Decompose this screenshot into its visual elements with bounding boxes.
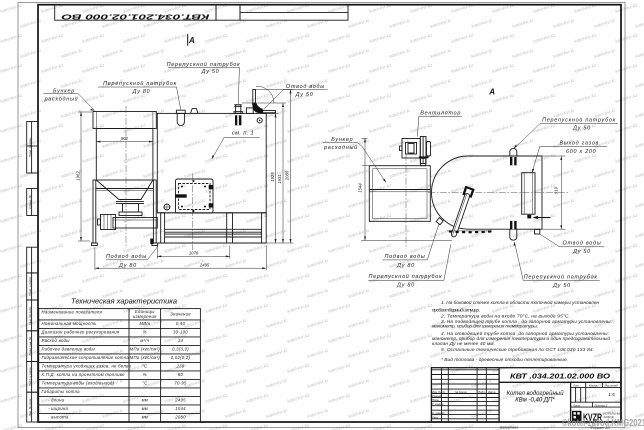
svg-text:Гидравлическое сопротивление к: Гидравлическое сопротивление котла <box>42 355 130 360</box>
svg-text:Габариты котла: Габариты котла <box>42 389 81 394</box>
svg-text:Техническая характеристика: Техническая характеристика <box>71 299 177 306</box>
svg-text:Т. контр.: Т. контр. <box>432 402 444 406</box>
svg-text:Отвод воды: Отвод воды <box>286 84 325 90</box>
svg-text:©kotel-zavod.KMG2021: ©kotel-zavod.KMG2021 <box>562 417 644 429</box>
svg-text:°С: °С <box>142 381 148 386</box>
svg-text:Диапазон рабочего регулировани: Диапазон рабочего регулирования <box>41 330 120 335</box>
svg-text:КВТ .034.201.02.000 ВО: КВТ .034.201.02.000 ВО <box>510 372 610 381</box>
svg-text:Перепускной патрубок: Перепускной патрубок <box>524 273 598 280</box>
svg-text:Дата: Дата <box>487 390 496 394</box>
svg-text:0,02(0,2): 0,02(0,2) <box>171 355 191 360</box>
svg-text:Копировал: Копировал <box>500 425 518 429</box>
svg-text:манометр, прибор для измерения: манометр, прибор для измерения температу… <box>432 324 538 330</box>
svg-text:Ду 50: Ду 50 <box>552 283 571 289</box>
svg-text:%: % <box>143 330 147 335</box>
svg-text:5. Остальные технические треб: 5. Остальные технические требования по О… <box>441 347 594 353</box>
svg-text:4. На отводящей трубе котла ,: 4. На отводящей трубе котла ,до запорной… <box>441 330 610 337</box>
svg-text:Расход воды: Расход воды <box>42 338 71 343</box>
svg-text:Выход газов: Выход газов <box>559 141 599 147</box>
svg-text:1078: 1078 <box>189 251 199 256</box>
svg-text:А: А <box>188 36 195 45</box>
svg-text:измерения: измерения <box>133 314 157 319</box>
svg-text:2080: 2080 <box>285 170 290 181</box>
svg-text:%: % <box>143 372 147 377</box>
svg-text:230: 230 <box>176 364 185 369</box>
svg-text:902: 902 <box>121 136 129 141</box>
svg-text:мм: мм <box>142 415 148 420</box>
svg-text:мм: мм <box>142 406 148 411</box>
svg-text:Подвод воды: Подвод воды <box>106 254 147 260</box>
svg-text:Ду 80: Ду 80 <box>396 263 415 269</box>
svg-text:Лит.: Лит. <box>572 383 580 387</box>
svg-text:Лист: Лист <box>572 403 581 407</box>
svg-text:1962: 1962 <box>76 171 81 181</box>
svg-text:Подп. и дата: Подп. и дата <box>28 367 32 386</box>
svg-text:Перепускной патрубок: Перепускной патрубок <box>368 273 442 280</box>
svg-text:МВт: МВт <box>139 321 150 326</box>
svg-text:Бункер: Бункер <box>331 137 353 143</box>
svg-text:- высота: - высота <box>48 415 69 420</box>
svg-text:Рабочее давление воды: Рабочее давление воды <box>42 347 96 352</box>
svg-text:1. На боковой стенке котла в: 1. На боковой стенке котла в области топ… <box>441 299 599 306</box>
svg-text:2495: 2495 <box>199 262 210 267</box>
svg-text:клапан Ду не менее 40 мм.: клапан Ду не менее 40 мм. <box>432 341 495 347</box>
svg-text:расходный: расходный <box>44 95 79 102</box>
svg-text:Ду 50: Ду 50 <box>201 69 220 75</box>
svg-text:№ докум.: № докум. <box>455 390 468 394</box>
svg-text:Перв. примен.: Перв. примен. <box>28 137 32 157</box>
svg-text:1544: 1544 <box>175 406 186 411</box>
svg-text:Наименование показателя: Наименование показателя <box>42 310 103 315</box>
svg-text:КВм -0,40 ДП*: КВм -0,40 ДП* <box>515 398 555 404</box>
svg-text:Номинальная мощность: Номинальная мощность <box>42 321 98 326</box>
svg-text:Котел водогрейный: Котел водогрейный <box>506 390 564 397</box>
svg-text:* Вид топлива - древесные отх: * Вид топлива - древесные отходы пеллети… <box>441 357 568 363</box>
svg-text:Подвод воды: Подвод воды <box>385 254 426 260</box>
svg-text:К.П.Д. котла на проектном топл: К.П.Д. котла на проектном топливе <box>42 372 126 377</box>
svg-text:Вентилятор: Вентилятор <box>420 111 461 117</box>
svg-text:1544: 1544 <box>357 183 362 193</box>
svg-text:- ширина: - ширина <box>48 406 68 411</box>
svg-text:Ду 80: Ду 80 <box>396 282 415 288</box>
svg-text:Ду 50: Ду 50 <box>572 249 591 255</box>
svg-text:м³/ч: м³/ч <box>140 338 149 343</box>
svg-text:Перепускной патрубок: Перепускной патрубок <box>103 80 177 87</box>
svg-text:Масштаб: Масштаб <box>605 383 618 387</box>
svg-text:0,40: 0,40 <box>176 321 186 326</box>
svg-text:Перепускной патрубок: Перепускной патрубок <box>542 117 616 124</box>
svg-text:пробоотборный штуцер.: пробоотборный штуцер. <box>432 306 480 313</box>
svg-text:А: А <box>488 88 495 97</box>
svg-text:МПа (кгс/см²): МПа (кгс/см²) <box>130 347 161 352</box>
svg-text:мм: мм <box>142 398 148 403</box>
svg-text:Инв. № подл.: Инв. № подл. <box>28 398 32 417</box>
svg-text:Значение: Значение <box>170 312 191 317</box>
svg-text:Подп. и дата: Подп. и дата <box>28 277 32 296</box>
svg-text:Инв. № дубл.: Инв. № дубл. <box>28 306 32 325</box>
svg-text:600 х 200: 600 х 200 <box>566 149 596 155</box>
svg-text:Ду 80: Ду 80 <box>132 89 151 95</box>
svg-text:2495: 2495 <box>174 398 186 403</box>
svg-text:2080: 2080 <box>174 415 186 420</box>
svg-text:14: 14 <box>178 338 184 343</box>
svg-text:МПа (кгс/см²): МПа (кгс/см²) <box>130 355 161 360</box>
svg-text:Температура воды (вход/выход): Температура воды (вход/выход) <box>42 381 115 386</box>
svg-text:манометр, прибор для измерения: манометр, прибор для измерения температу… <box>432 335 610 342</box>
svg-text:Утв.: Утв. <box>432 415 439 419</box>
svg-text:Масса: Масса <box>589 383 598 387</box>
svg-text:расходный: расходный <box>323 144 358 151</box>
svg-text:Температура уходящих газов, не: Температура уходящих газов, не более <box>42 364 132 369</box>
svg-text:°С: °С <box>142 364 148 369</box>
svg-text:2. Температура воды на входе: 2. Температура воды на входе 70°С, на вы… <box>440 314 570 320</box>
svg-text:1:5: 1:5 <box>608 392 615 397</box>
svg-text:30-100: 30-100 <box>173 330 188 335</box>
svg-text:80: 80 <box>178 372 184 377</box>
svg-text:Листов 1: Листов 1 <box>594 403 608 407</box>
svg-text:Подп.: Подп. <box>478 390 486 394</box>
svg-text:0,3(3,0): 0,3(3,0) <box>172 347 189 352</box>
svg-text:Отвод воды: Отвод воды <box>563 240 602 246</box>
svg-text:- длина: - длина <box>48 398 65 403</box>
svg-text:КВТ.034.201.02.000 ВО: КВТ.034.201.02.000 ВО <box>61 13 209 22</box>
svg-text:70-95: 70-95 <box>174 381 187 386</box>
svg-text:Перепускной патрубок: Перепускной патрубок <box>167 61 241 68</box>
svg-text:Ду 50: Ду 50 <box>295 92 314 98</box>
svg-text:Справ. №: Справ. № <box>28 194 32 208</box>
svg-text:1825: 1825 <box>270 172 275 182</box>
svg-text:Взам. инв. №: Взам. инв. № <box>28 336 32 355</box>
svg-text:Ду 80: Ду 80 <box>118 263 137 269</box>
svg-text:1931: 1931 <box>277 174 282 183</box>
svg-text:919: 919 <box>553 186 558 194</box>
svg-text:см. п. 1: см. п. 1 <box>232 131 254 137</box>
svg-text:Ду 50: Ду 50 <box>572 126 591 132</box>
